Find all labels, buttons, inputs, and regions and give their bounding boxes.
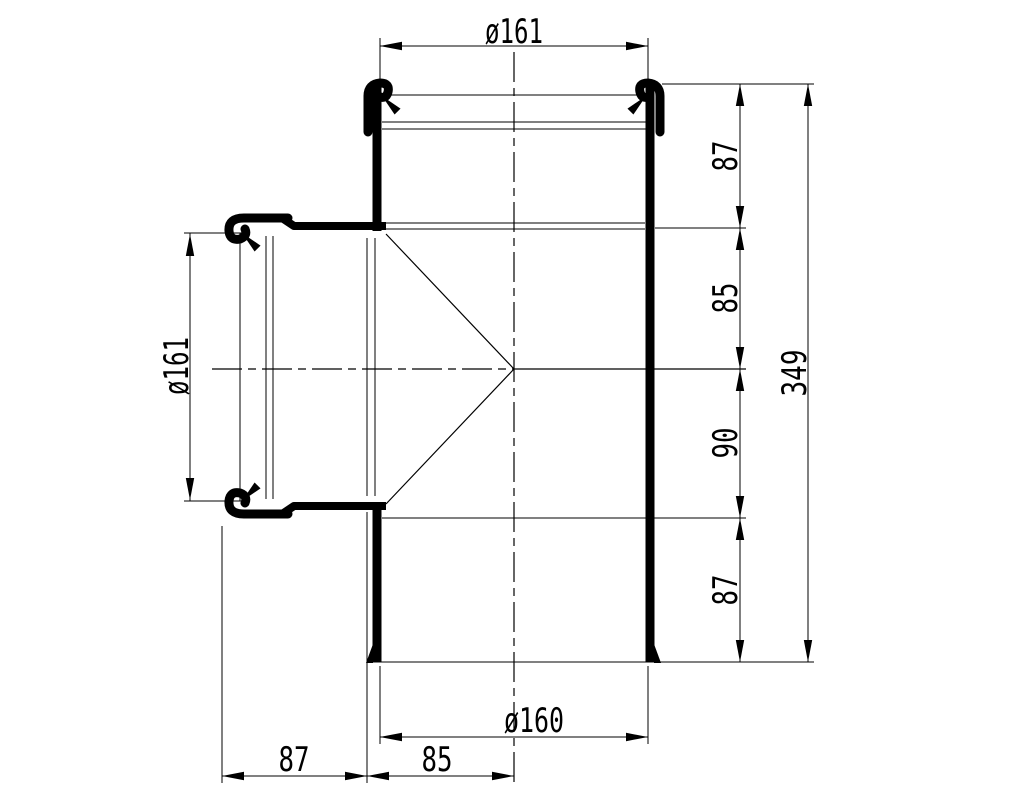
arrow [626, 42, 648, 50]
junction-diagonal-lower [386, 369, 514, 504]
arrow [186, 478, 194, 500]
arrow [736, 206, 744, 228]
dim-pipe-outer-diameter: ø160 [504, 701, 564, 741]
drawing-canvas: ø161 ø161 87 85 90 87 349 ø160 87 85 [0, 0, 1017, 791]
dim-right-segment-bottom: 87 [706, 575, 746, 606]
fitting-outline [229, 82, 661, 663]
arrow [736, 518, 744, 540]
bead-branch-top [229, 218, 288, 239]
dim-branch-socket-diameter: ø161 [157, 337, 197, 395]
arrow [736, 369, 744, 391]
junction-diagonal-upper [386, 234, 514, 369]
pipe-tee-technical-drawing: ø161 ø161 87 85 90 87 349 ø160 87 85 [0, 0, 1017, 791]
dim-right-segment-upper-middle: 85 [706, 283, 746, 314]
arrow [492, 772, 514, 780]
arrow [736, 496, 744, 518]
dim-overall-length: 349 [775, 350, 815, 397]
arrow [345, 772, 367, 780]
dim-bottom-segment-right: 85 [422, 740, 453, 780]
dimension-labels: ø161 ø161 87 85 90 87 349 ø160 87 85 [157, 12, 815, 780]
arrow [736, 347, 744, 369]
dim-right-segment-lower-middle: 90 [706, 428, 746, 459]
arrow [626, 733, 648, 741]
arrow [736, 84, 744, 106]
arrow [736, 640, 744, 662]
arrow [186, 234, 194, 256]
centerlines [212, 52, 746, 786]
arrow [736, 228, 744, 250]
dim-right-segment-top: 87 [706, 141, 746, 172]
arrow [804, 640, 812, 662]
arrow [367, 772, 389, 780]
arrow [380, 42, 402, 50]
arrow [222, 772, 244, 780]
flare-bottom-right [654, 644, 661, 663]
arrow [380, 733, 402, 741]
bead-branch-bottom [229, 493, 288, 514]
dim-top-socket-diameter: ø161 [485, 12, 543, 52]
arrow [804, 84, 812, 106]
dim-bottom-segment-left: 87 [279, 740, 310, 780]
